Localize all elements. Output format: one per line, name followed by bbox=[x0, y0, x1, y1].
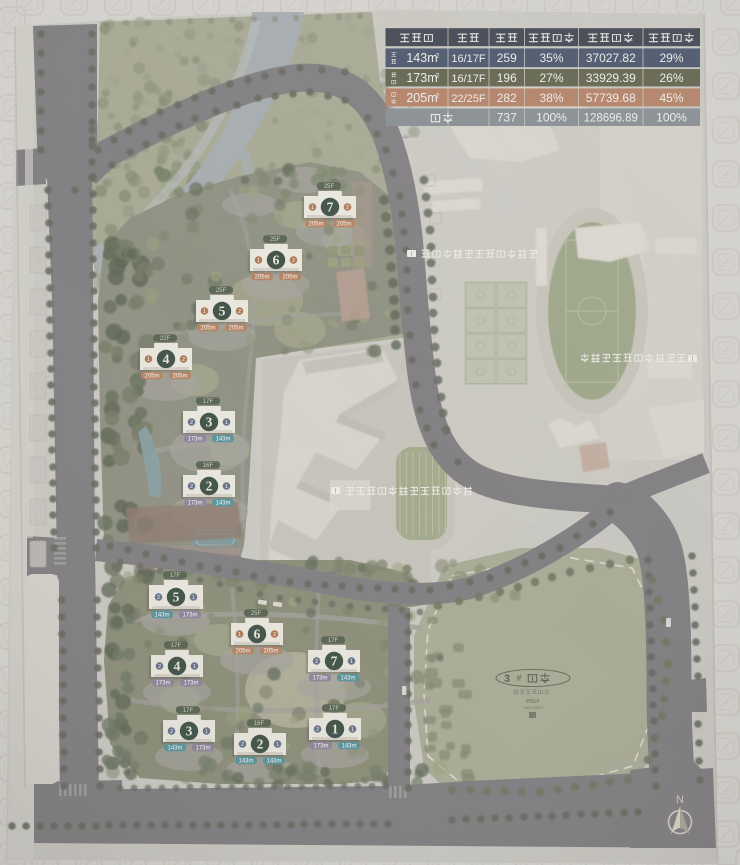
svg-text:282: 282 bbox=[497, 91, 517, 105]
svg-text:16/17F: 16/17F bbox=[451, 53, 486, 65]
svg-text:143m: 143m bbox=[406, 51, 437, 65]
svg-text:16/17F: 16/17F bbox=[451, 73, 486, 85]
svg-text:2: 2 bbox=[436, 53, 440, 60]
svg-text:35%: 35% bbox=[539, 51, 563, 65]
svg-text:259: 259 bbox=[497, 51, 517, 65]
svg-text:22/25F: 22/25F bbox=[451, 93, 486, 105]
svg-text:2: 2 bbox=[436, 73, 440, 80]
svg-text:45%: 45% bbox=[659, 91, 683, 105]
svg-text:29%: 29% bbox=[659, 51, 683, 65]
svg-text:57739.68: 57739.68 bbox=[586, 91, 636, 105]
svg-text:37027.82: 37027.82 bbox=[586, 51, 636, 65]
svg-text:205m: 205m bbox=[406, 91, 437, 105]
svg-text:100%: 100% bbox=[656, 110, 687, 124]
svg-text:737: 737 bbox=[497, 110, 517, 124]
svg-text:26%: 26% bbox=[659, 71, 683, 85]
svg-text:128696.89: 128696.89 bbox=[584, 112, 638, 124]
svg-text:38%: 38% bbox=[539, 91, 563, 105]
svg-text:173m: 173m bbox=[406, 71, 437, 85]
svg-text:33929.39: 33929.39 bbox=[586, 71, 636, 85]
svg-text:2: 2 bbox=[436, 93, 440, 100]
svg-text:196: 196 bbox=[497, 71, 517, 85]
svg-text:100%: 100% bbox=[536, 110, 567, 124]
svg-text:27%: 27% bbox=[539, 71, 563, 85]
